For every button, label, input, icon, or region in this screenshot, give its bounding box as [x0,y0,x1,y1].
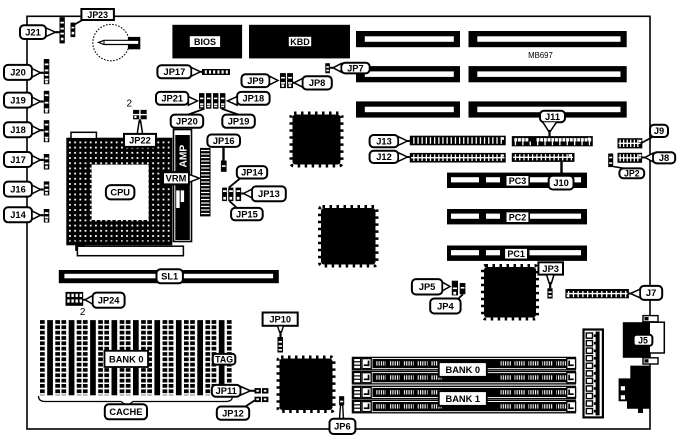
svg-text:BANK 0: BANK 0 [445,365,480,375]
svg-text:J7: J7 [646,288,656,298]
svg-text:JP11: JP11 [216,386,237,396]
svg-text:VRM: VRM [166,174,187,184]
svg-text:J12: J12 [376,152,392,162]
svg-text:J18: J18 [10,125,26,135]
svg-text:SL1: SL1 [161,272,178,282]
svg-text:MB697: MB697 [528,51,553,60]
svg-text:J14: J14 [10,210,26,220]
svg-text:JP15: JP15 [236,209,258,219]
svg-text:JP16: JP16 [213,136,235,146]
svg-text:TAG: TAG [215,355,233,365]
svg-text:KBD: KBD [290,37,310,47]
svg-text:JP18: JP18 [242,94,264,104]
svg-text:PC2: PC2 [509,213,527,223]
svg-text:CACHE: CACHE [109,407,142,417]
svg-text:CPU: CPU [110,188,130,198]
svg-text:J20: J20 [10,68,26,78]
svg-text:BANK 0: BANK 0 [109,355,144,365]
svg-text:JP13: JP13 [258,189,280,199]
svg-text:JP23: JP23 [87,10,108,20]
svg-text:JP19: JP19 [228,117,250,127]
svg-text:2: 2 [80,307,86,318]
svg-text:JP7: JP7 [347,63,364,73]
svg-text:J16: J16 [10,184,26,194]
svg-text:JP21: JP21 [161,94,183,104]
svg-text:JP14: JP14 [241,168,264,178]
svg-text:2: 2 [127,99,133,110]
svg-text:AMP: AMP [179,145,190,168]
svg-text:J11: J11 [545,112,560,122]
svg-text:J5: J5 [638,336,648,346]
svg-text:J17: J17 [10,155,26,165]
svg-text:JP22: JP22 [129,136,151,146]
svg-text:JP20: JP20 [176,117,198,127]
svg-text:J19: J19 [10,95,26,105]
svg-text:JP17: JP17 [164,67,186,77]
svg-text:JP2: JP2 [624,169,640,179]
svg-text:J10: J10 [553,178,569,188]
svg-text:JP10: JP10 [269,314,291,324]
svg-text:J21: J21 [25,27,41,37]
svg-text:JP12: JP12 [222,408,244,418]
svg-text:JP5: JP5 [419,282,436,292]
svg-text:J9: J9 [654,126,664,136]
svg-text:JP6: JP6 [334,422,351,432]
svg-text:JP9: JP9 [247,76,264,86]
svg-text:JP3: JP3 [542,264,559,274]
svg-text:J8: J8 [659,153,669,163]
svg-text:PC3: PC3 [509,176,527,186]
svg-text:JP8: JP8 [309,78,326,88]
svg-text:BANK 1: BANK 1 [445,394,480,404]
svg-text:JP4: JP4 [437,301,454,311]
svg-text:J13: J13 [376,136,392,146]
svg-text:JP24: JP24 [98,296,121,306]
svg-text:PC1: PC1 [507,249,525,259]
svg-text:BIOS: BIOS [194,37,216,47]
